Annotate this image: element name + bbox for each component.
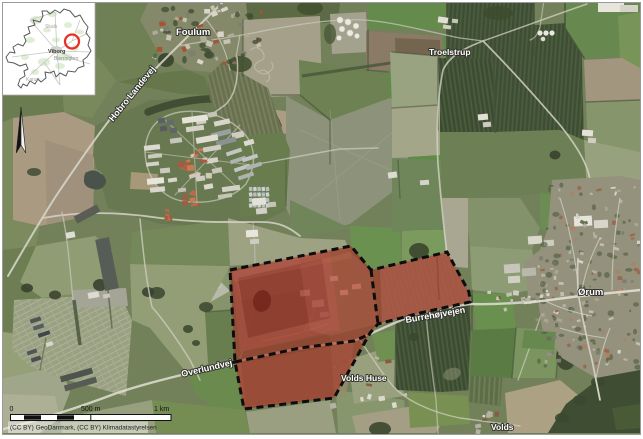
svg-text:Ørum: Ørum (578, 287, 603, 298)
svg-text:Karup: Karup (26, 77, 40, 83)
svg-text:1 km: 1 km (154, 406, 169, 413)
svg-text:Troelstrup: Troelstrup (429, 47, 471, 57)
svg-text:500 m: 500 m (81, 406, 101, 413)
svg-text:Foulum: Foulum (176, 27, 210, 38)
svg-text:Volds Huse: Volds Huse (341, 373, 387, 383)
svg-text:Skals: Skals (45, 24, 58, 30)
svg-text:Bjerringbro: Bjerringbro (54, 56, 79, 62)
svg-text:Volds: Volds (491, 422, 514, 432)
svg-text:0: 0 (10, 406, 14, 413)
svg-text:Viborg: Viborg (48, 49, 65, 55)
svg-text:(CC BY) GeoDanmark, (CC BY) Kl: (CC BY) GeoDanmark, (CC BY) Klimadatasty… (10, 425, 157, 432)
